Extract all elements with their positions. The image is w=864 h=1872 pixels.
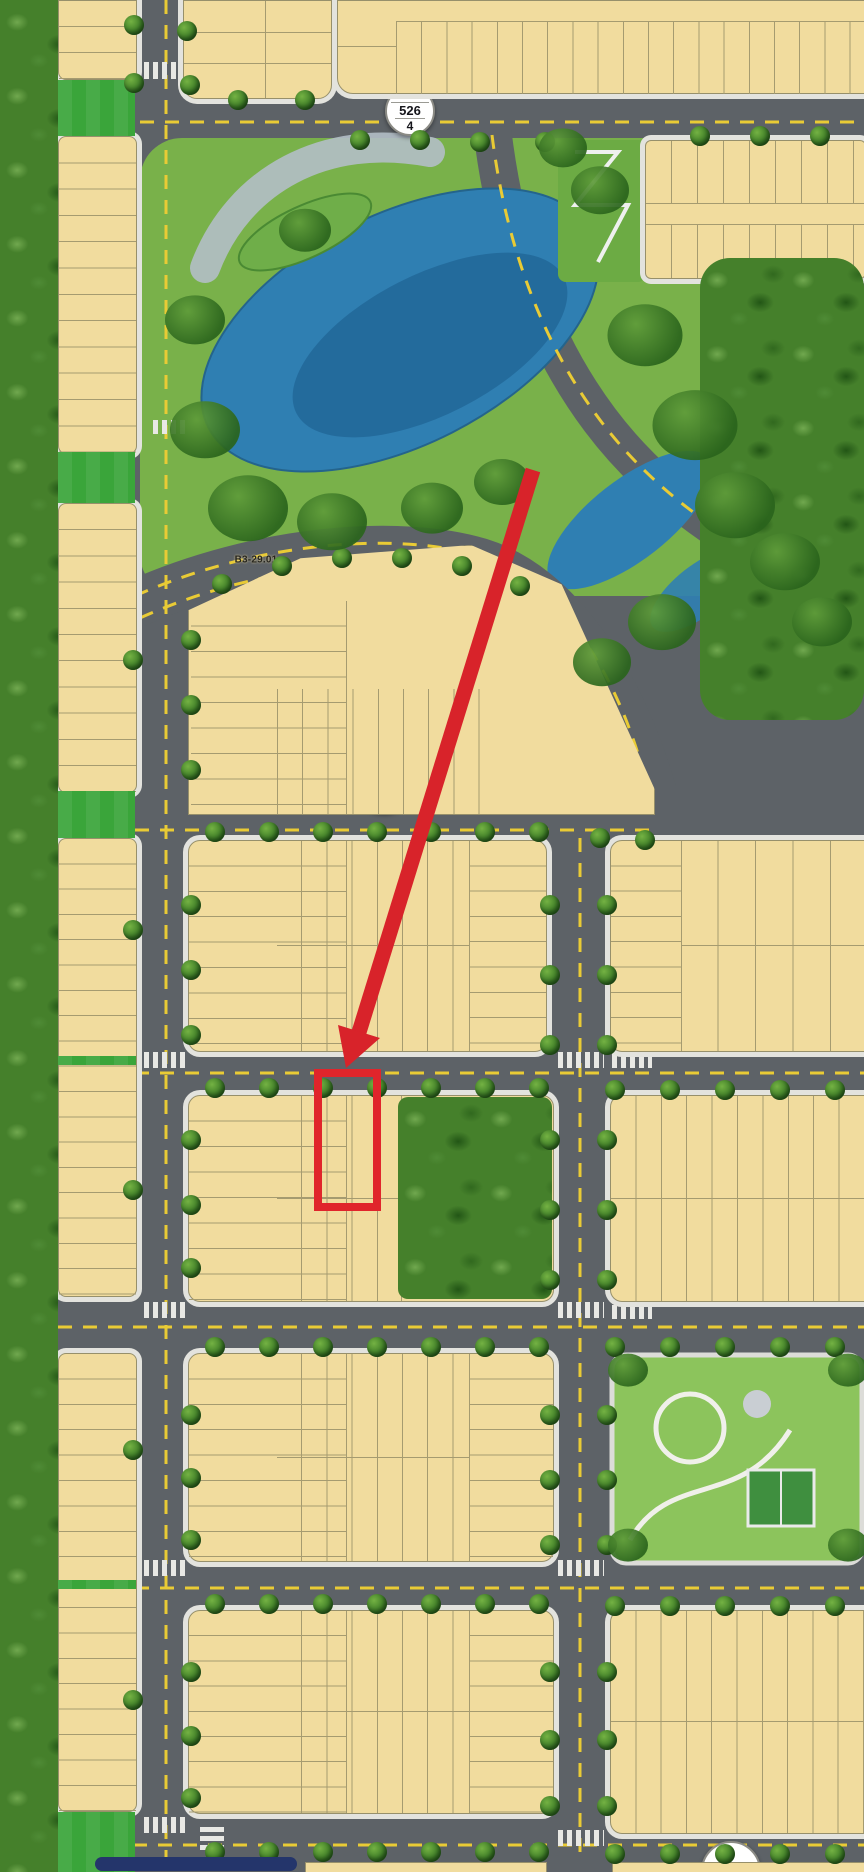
tree-icon (123, 920, 143, 940)
tree-clump (539, 128, 587, 167)
tree-clump (279, 209, 331, 252)
parcel-b2-41 (188, 840, 547, 1052)
tree-icon (605, 1844, 625, 1864)
tree-clump (573, 638, 631, 686)
tree-icon (205, 822, 225, 842)
tree-icon (181, 1468, 201, 1488)
tree-icon (180, 75, 200, 95)
tree-clump (608, 304, 683, 366)
tree-clump (474, 459, 530, 505)
parcel-b2-23 (183, 0, 332, 99)
tree-clump (750, 533, 820, 590)
parcel-b2-35 (58, 503, 137, 793)
parcel-b2-49 (188, 1610, 554, 1814)
tree-icon (421, 1594, 441, 1614)
tree-clump (828, 1354, 864, 1387)
tree-icon (597, 1730, 617, 1750)
tree-icon (421, 822, 441, 842)
tree-icon (124, 73, 144, 93)
tree-clump (208, 475, 288, 541)
tree-icon (421, 1078, 441, 1098)
parcel-b2-44 (610, 1095, 864, 1302)
tree-icon (715, 1596, 735, 1616)
parcel-b2-33 (58, 0, 137, 80)
tree-icon (181, 1662, 201, 1682)
tree-icon (410, 130, 430, 150)
tree-clump (608, 1354, 648, 1387)
tree-icon (367, 822, 387, 842)
tree-icon (605, 1080, 625, 1100)
tree-clump (401, 483, 463, 534)
tree-icon (475, 1337, 495, 1357)
tree-icon (177, 21, 197, 41)
tree-icon (313, 1078, 333, 1098)
tree-icon (181, 1726, 201, 1746)
lawn (58, 1580, 136, 1589)
tree-clump (608, 1529, 648, 1562)
tree-icon (272, 556, 292, 576)
tree-icon (181, 695, 201, 715)
tree-icon (529, 1078, 549, 1098)
tree-icon (510, 576, 530, 596)
forest-strip-west (0, 0, 58, 1872)
tree-icon (590, 828, 610, 848)
tree-icon (529, 822, 549, 842)
tree-icon (475, 1594, 495, 1614)
tree-icon (540, 1662, 560, 1682)
tree-clump (297, 493, 367, 550)
tree-icon (825, 1596, 845, 1616)
parcel-b2-50 (610, 1610, 864, 1834)
water-channel-bottom (95, 1857, 297, 1871)
tree-icon (181, 895, 201, 915)
parcel-b2-34 (58, 136, 137, 454)
tree-icon (452, 556, 472, 576)
tree-icon (313, 1337, 333, 1357)
tree-icon (123, 1690, 143, 1710)
tree-icon (540, 1130, 560, 1150)
tree-icon (392, 548, 412, 568)
tree-icon (421, 1337, 441, 1357)
parcel-bottom-partial (305, 1862, 547, 1872)
tree-icon (181, 1025, 201, 1045)
tree-icon (540, 1796, 560, 1816)
tree-icon (350, 130, 370, 150)
tree-icon (660, 1337, 680, 1357)
tree-icon (367, 1842, 387, 1862)
tree-icon (205, 1337, 225, 1357)
tree-icon (597, 965, 617, 985)
master-plan-map: B2-33.17B2-33.18B2-33.19B2-34.01B2-34.02… (0, 0, 864, 1872)
tree-icon (660, 1844, 680, 1864)
tree-icon (597, 1796, 617, 1816)
tree-icon (124, 15, 144, 35)
tree-clump (628, 594, 696, 650)
tree-icon (367, 1337, 387, 1357)
tree-icon (690, 126, 710, 146)
tree-icon (228, 90, 248, 110)
tree-icon (367, 1594, 387, 1614)
tree-icon (540, 895, 560, 915)
tree-icon (660, 1596, 680, 1616)
grove-block-43 (398, 1097, 552, 1299)
tree-icon (770, 1596, 790, 1616)
tree-icon (181, 1788, 201, 1808)
tree-clump (792, 597, 852, 646)
tree-icon (529, 1337, 549, 1357)
tree-icon (181, 1258, 201, 1278)
tree-icon (123, 1440, 143, 1460)
tree-icon (181, 1195, 201, 1215)
tree-icon (635, 830, 655, 850)
tree-icon (470, 132, 490, 152)
tree-icon (597, 1130, 617, 1150)
tree-clump (695, 472, 775, 538)
tree-icon (313, 822, 333, 842)
tree-icon (770, 1337, 790, 1357)
tree-icon (367, 1078, 387, 1098)
tree-icon (540, 1470, 560, 1490)
tree-icon (540, 965, 560, 985)
lawn (58, 452, 135, 503)
parcel-bottom-partial (612, 1862, 864, 1872)
tree-icon (259, 822, 279, 842)
tree-icon (205, 1594, 225, 1614)
tree-clump (165, 295, 225, 344)
tree-icon (181, 630, 201, 650)
lawn (58, 791, 135, 838)
tree-icon (540, 1405, 560, 1425)
tree-icon (295, 90, 315, 110)
tree-icon (540, 1200, 560, 1220)
tree-icon (597, 1035, 617, 1055)
tree-icon (475, 822, 495, 842)
parcel-b2-46 (188, 1353, 554, 1562)
tree-icon (715, 1844, 735, 1864)
tree-icon (597, 895, 617, 915)
tree-icon (475, 1078, 495, 1098)
tree-icon (597, 1662, 617, 1682)
tree-icon (123, 650, 143, 670)
tree-icon (181, 1405, 201, 1425)
tree-icon (660, 1080, 680, 1100)
tree-icon (770, 1844, 790, 1864)
tree-icon (597, 1470, 617, 1490)
tree-icon (212, 574, 232, 594)
tree-icon (475, 1842, 495, 1862)
tree-icon (259, 1594, 279, 1614)
lawn (58, 80, 135, 136)
tree-icon (540, 1730, 560, 1750)
tree-icon (810, 126, 830, 146)
tree-icon (181, 960, 201, 980)
tree-icon (605, 1596, 625, 1616)
tree-icon (181, 1530, 201, 1550)
tree-icon (421, 1842, 441, 1862)
tree-icon (597, 1200, 617, 1220)
tree-icon (529, 1594, 549, 1614)
tree-icon (715, 1337, 735, 1357)
tree-icon (597, 1270, 617, 1290)
tree-icon (529, 1842, 549, 1862)
tree-icon (123, 1180, 143, 1200)
tree-icon (770, 1080, 790, 1100)
badge-area-value: 526 (391, 102, 429, 119)
parcel-b3-28-b2-29 (337, 0, 864, 94)
tree-icon (597, 1405, 617, 1425)
tree-clump (170, 401, 240, 458)
tree-icon (825, 1844, 845, 1864)
tree-icon (750, 126, 770, 146)
tree-icon (332, 548, 352, 568)
parcel-b2-42-b3-30 (610, 840, 864, 1052)
tree-icon (259, 1337, 279, 1357)
tree-icon (181, 1130, 201, 1150)
parcel-b2-36 (58, 838, 137, 1297)
tree-icon (259, 1078, 279, 1098)
tree-icon (205, 1078, 225, 1098)
tree-clump (571, 166, 629, 214)
tree-icon (825, 1080, 845, 1100)
tree-clump (828, 1529, 864, 1562)
tree-icon (313, 1594, 333, 1614)
tree-clump (653, 390, 738, 460)
tree-icon (540, 1035, 560, 1055)
tree-icon (313, 1842, 333, 1862)
tree-icon (181, 760, 201, 780)
tree-icon (540, 1535, 560, 1555)
tree-icon (715, 1080, 735, 1100)
lawn (58, 1056, 136, 1065)
tree-icon (540, 1270, 560, 1290)
